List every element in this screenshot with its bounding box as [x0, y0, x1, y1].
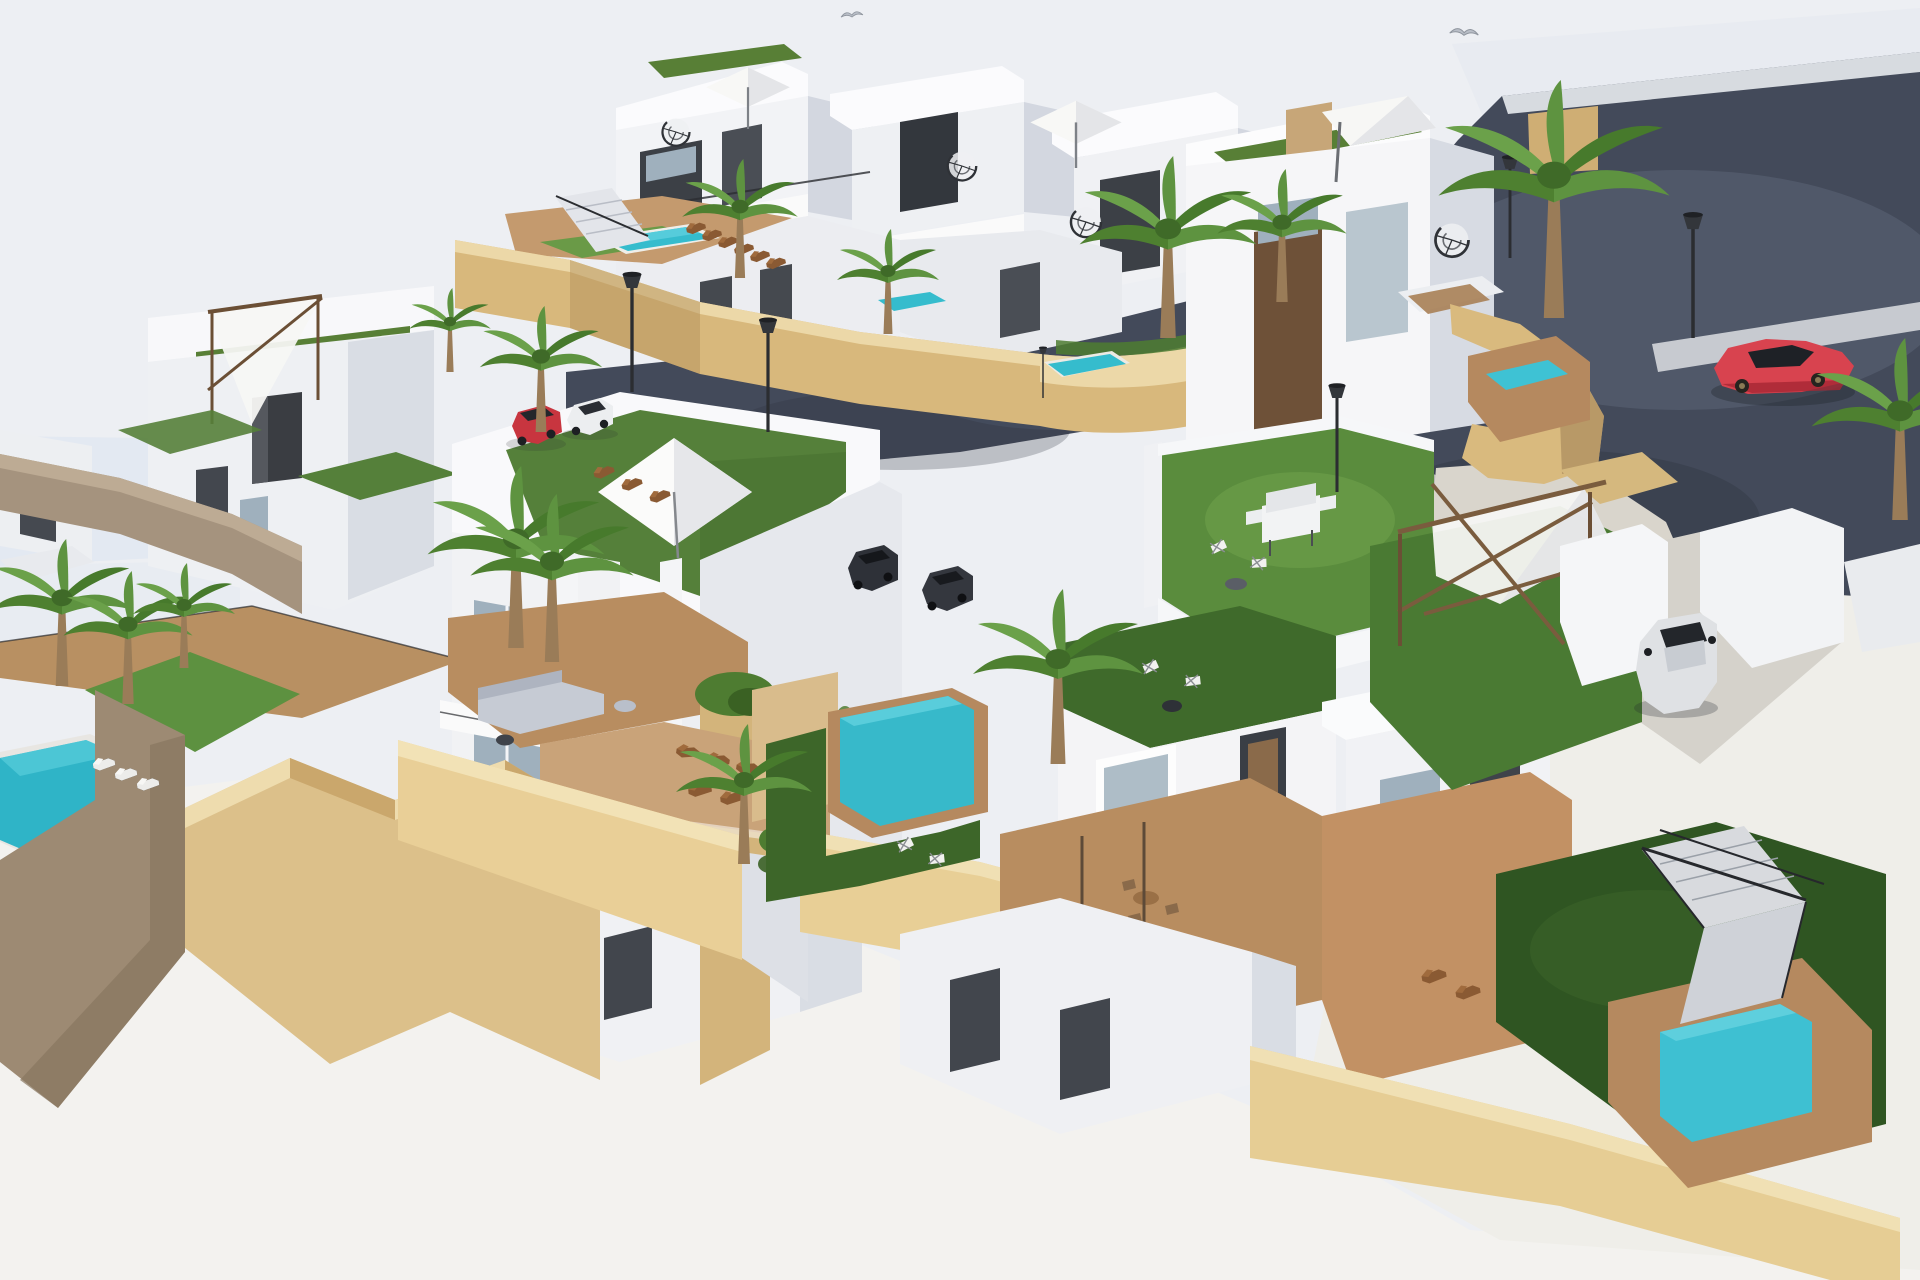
lamp-pole	[1691, 228, 1695, 338]
car-wheel	[854, 581, 863, 590]
lamp-pole	[766, 332, 769, 432]
sofa-pouf	[614, 700, 636, 712]
car-wheel	[958, 594, 967, 603]
car-wheel	[572, 427, 580, 435]
palm-crown	[1273, 215, 1292, 230]
palm-crown	[881, 265, 896, 277]
lamp-pole	[1335, 397, 1338, 492]
bistro-table	[1133, 891, 1159, 905]
garden-pouf	[1162, 700, 1182, 712]
palm-crown	[1046, 649, 1071, 669]
wheel-hub	[1739, 383, 1745, 389]
garden-wall-white	[1144, 442, 1162, 608]
car-wheel	[600, 420, 608, 428]
lamp-pole	[1042, 353, 1043, 398]
car-wheel	[1644, 648, 1652, 656]
window-dark	[950, 968, 1000, 1072]
palm-crown	[1887, 400, 1913, 421]
palm-crown	[1155, 218, 1181, 239]
spiral-staircase	[663, 119, 690, 146]
window-dark	[604, 926, 652, 1020]
spiral-staircase	[1436, 224, 1469, 257]
car-wheel	[547, 430, 556, 439]
palm-crown	[734, 772, 754, 788]
wheel-hub	[1815, 377, 1821, 383]
architectural-render	[0, 0, 1920, 1280]
lamp-cap	[623, 272, 642, 277]
car-wheel	[928, 602, 937, 611]
window-dark	[1000, 262, 1040, 338]
car-wheel	[518, 437, 527, 446]
render-canvas	[0, 0, 1920, 1280]
lamp-cap	[759, 318, 777, 323]
palm-crown	[177, 599, 192, 611]
brown-window-band	[1254, 222, 1322, 454]
palm-crown	[1537, 162, 1571, 189]
floor-pouf	[496, 735, 514, 746]
lamp-cap	[1039, 346, 1047, 348]
lamp-cap	[1683, 212, 1703, 218]
garden-pouf	[1225, 578, 1247, 590]
palm-crown	[444, 317, 456, 327]
spiral-staircase	[948, 152, 977, 181]
palm-crown	[732, 200, 749, 214]
lamp-pole	[630, 287, 633, 392]
lamp-cap	[1328, 383, 1345, 388]
palm-crown	[532, 349, 550, 363]
window-dark	[1060, 998, 1110, 1100]
palm-crown	[540, 552, 564, 571]
car-wheel	[1708, 636, 1716, 644]
glass-door	[1346, 202, 1408, 342]
car-wheel	[884, 573, 893, 582]
palm-crown	[119, 617, 138, 632]
